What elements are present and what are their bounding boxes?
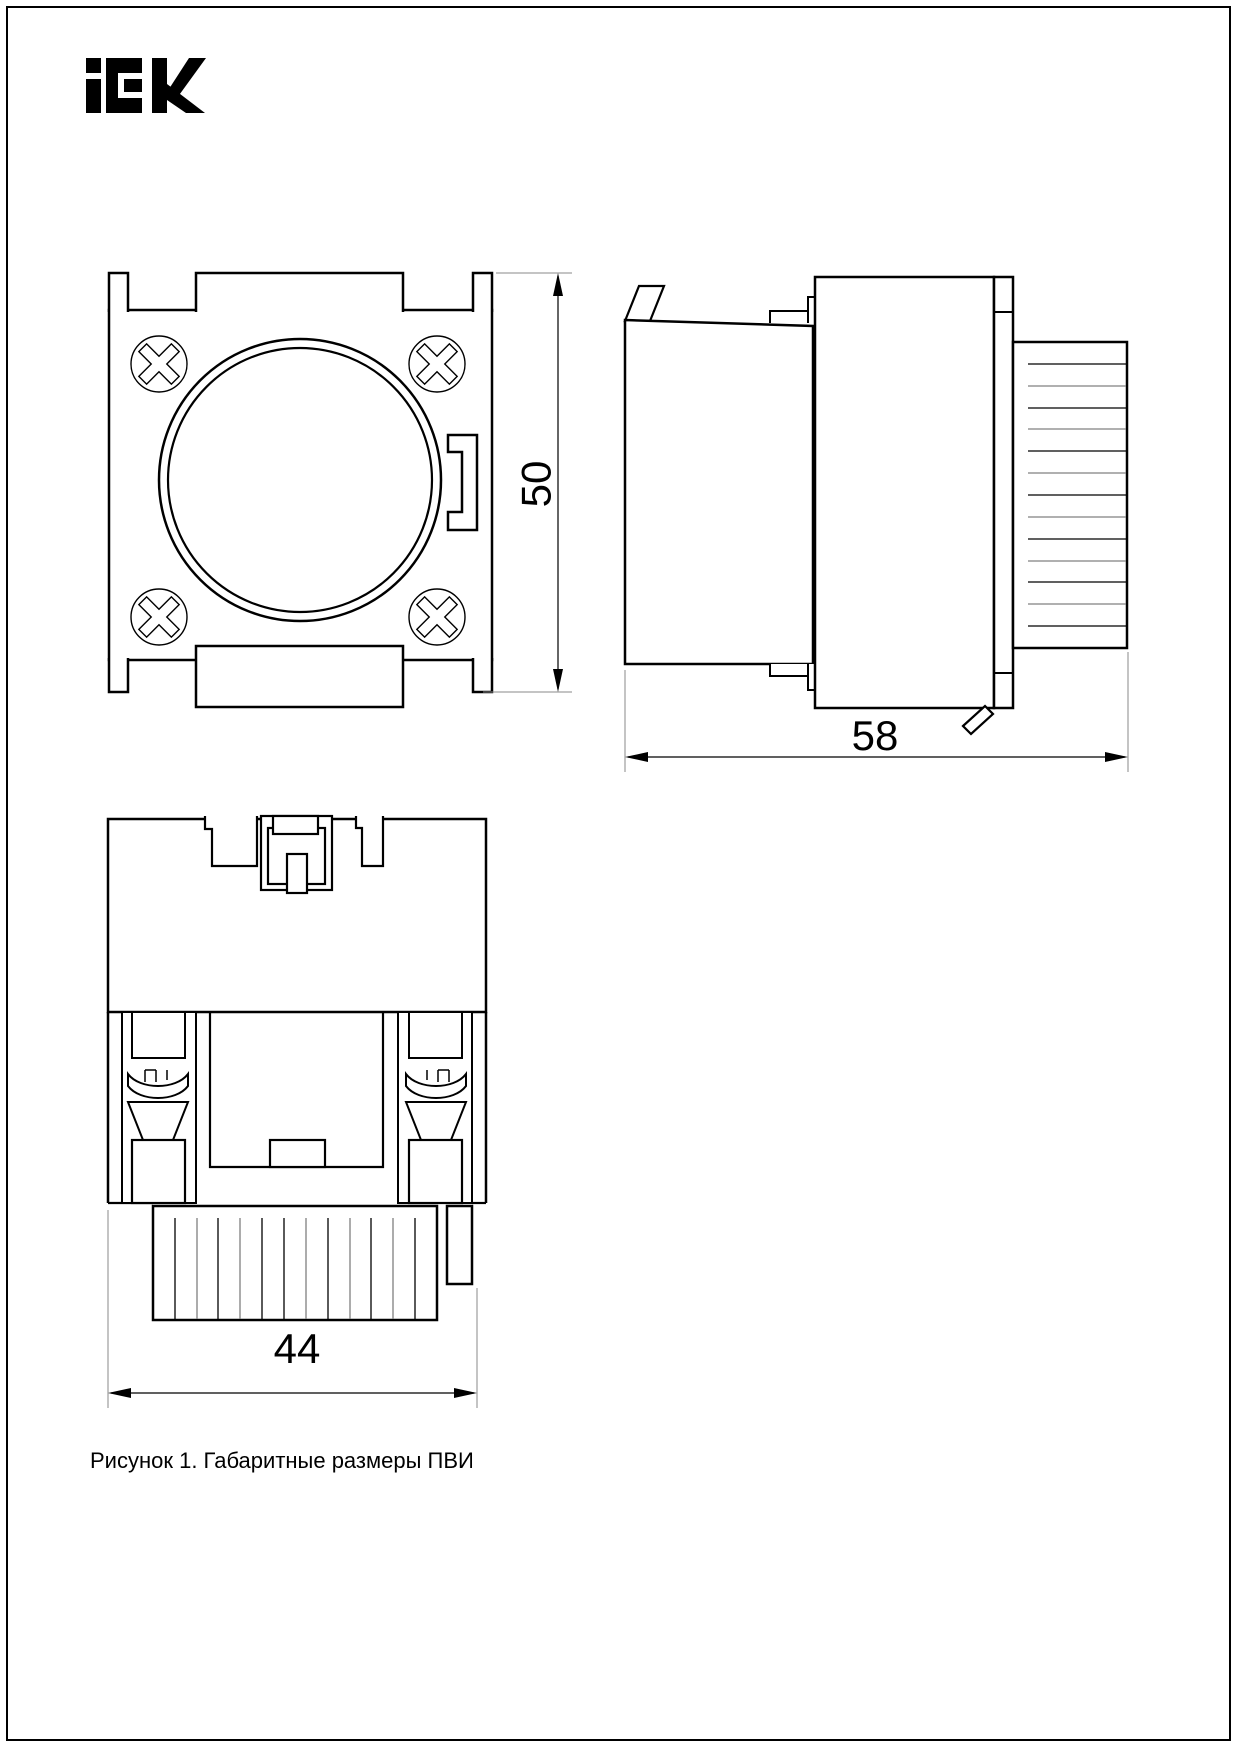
logo-k-lower-arm — [167, 84, 205, 113]
terminal-left — [122, 1012, 196, 1203]
front-tab-top-right — [473, 273, 492, 312]
din-latch — [261, 816, 332, 893]
latch-tab — [287, 854, 307, 893]
terminal-right — [398, 1012, 472, 1203]
cavity-tab — [270, 1140, 325, 1167]
centre-cavity — [210, 1012, 383, 1167]
screw-top-right — [404, 331, 469, 396]
iek-logo — [86, 58, 206, 113]
side-rear-strip — [994, 277, 1013, 708]
screw-cross-icon — [404, 584, 469, 649]
side-main-body — [815, 277, 994, 708]
dimension-height: 50 — [483, 273, 572, 692]
logo-e-bottom — [106, 98, 142, 113]
arrow-left-icon — [625, 752, 648, 762]
terminal-foot — [132, 1140, 185, 1203]
screw-top-left — [126, 331, 191, 396]
logo-k-stem — [152, 58, 167, 113]
dimension-height-label: 50 — [513, 461, 560, 508]
figure-caption: Рисунок 1. Габаритные размеры ПВИ — [90, 1448, 474, 1473]
top-notch-left — [205, 816, 257, 866]
document-page: 50 — [0, 0, 1237, 1747]
latch-top-plate — [273, 816, 318, 834]
arrow-right-icon — [1105, 752, 1128, 762]
logo-i-stem — [86, 79, 101, 113]
bottom-view — [108, 816, 486, 1320]
arrow-left-icon — [108, 1388, 131, 1398]
dimension-width-label: 44 — [274, 1325, 321, 1372]
bottom-side-block — [447, 1206, 472, 1284]
front-tab-top-left — [109, 273, 128, 312]
front-side-bracket — [448, 435, 477, 530]
screw-cross-icon — [404, 331, 469, 396]
side-front-part — [625, 320, 813, 664]
arrow-right-icon — [454, 1388, 477, 1398]
terminal-foot — [409, 1140, 462, 1203]
front-top-plate — [196, 273, 403, 312]
screws — [126, 331, 469, 649]
screw-bottom-left — [126, 584, 191, 649]
screw-bottom-right — [404, 584, 469, 649]
front-view — [109, 273, 492, 707]
screw-cross-icon — [126, 584, 191, 649]
logo-e-top — [106, 58, 142, 73]
logo-e-mid — [124, 79, 142, 92]
bottom-ribbed-block — [153, 1206, 437, 1320]
arrow-up-icon — [553, 273, 563, 296]
arrow-down-icon — [553, 669, 563, 692]
button-outer-circle — [159, 339, 441, 621]
front-tab-bottom-left — [109, 658, 128, 692]
button-inner-circle — [168, 348, 432, 612]
side-step-bottom-1 — [770, 664, 808, 676]
dimensional-drawing: 50 — [0, 0, 1237, 1747]
side-view — [625, 277, 1127, 734]
side-top-tab — [625, 286, 664, 321]
side-bottom-tab — [963, 706, 993, 734]
side-step-top-1 — [770, 311, 808, 323]
screw-cross-icon — [126, 331, 191, 396]
dimension-depth-label: 58 — [852, 712, 899, 759]
logo-i-dot — [86, 58, 101, 73]
front-bottom-plate — [196, 646, 403, 707]
front-tab-bottom-right — [473, 658, 492, 692]
